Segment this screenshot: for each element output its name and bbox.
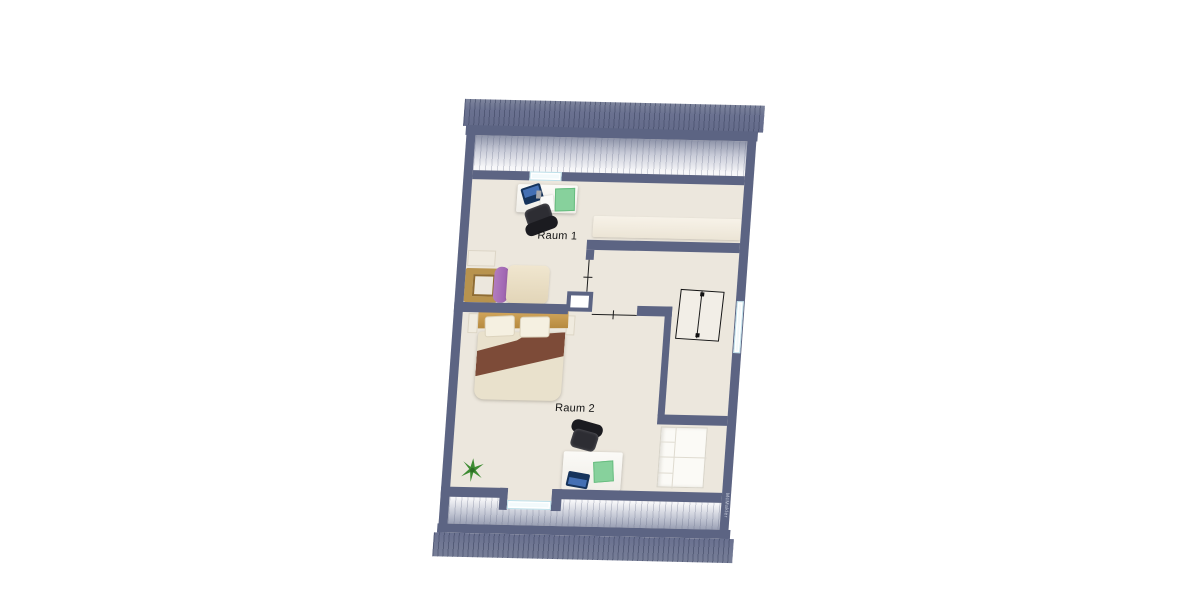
laptop-screen: [568, 477, 587, 487]
room-label-raum2: Raum 2: [545, 402, 606, 415]
open-shelf: [656, 426, 707, 488]
potted-plant-icon: [459, 457, 487, 484]
headboard-shelf: [467, 250, 496, 267]
shelf-line: [661, 441, 675, 442]
desk-mat-raum1: [555, 188, 575, 212]
nightstand-left: [467, 313, 478, 333]
shelf-divider-vertical: [671, 428, 676, 489]
door-opening-tick: [583, 277, 592, 278]
chimney-shaft: [566, 291, 593, 312]
wall-bottom-left-seg: [441, 486, 509, 498]
staircase-dot-top: [700, 292, 704, 296]
phone: [536, 191, 542, 199]
single-mattress: [505, 265, 550, 304]
pillow-right: [519, 316, 550, 337]
wall-door-stub: [586, 250, 595, 260]
staircase: [675, 289, 725, 342]
window-top: [529, 171, 562, 181]
double-bed: [472, 310, 568, 402]
room-label-raum1: Raum 1: [527, 229, 588, 242]
wood-frame-inner: [472, 274, 496, 296]
wall-alcove-top: [657, 414, 728, 426]
low-cabinet: [592, 216, 741, 240]
shelf-line: [658, 472, 672, 473]
staircase-center-line: [696, 291, 702, 338]
floor-plan: Raum 1 Raum 2: [436, 99, 769, 565]
shelf-line: [660, 456, 707, 458]
wall-slope-left-seg: [472, 170, 530, 180]
window-bottom: [507, 500, 552, 510]
dormer-stub-right: [551, 489, 563, 511]
pillow-left: [485, 315, 515, 337]
desk-mat-raum2: [593, 460, 614, 483]
staircase-dot-bottom: [695, 333, 699, 337]
